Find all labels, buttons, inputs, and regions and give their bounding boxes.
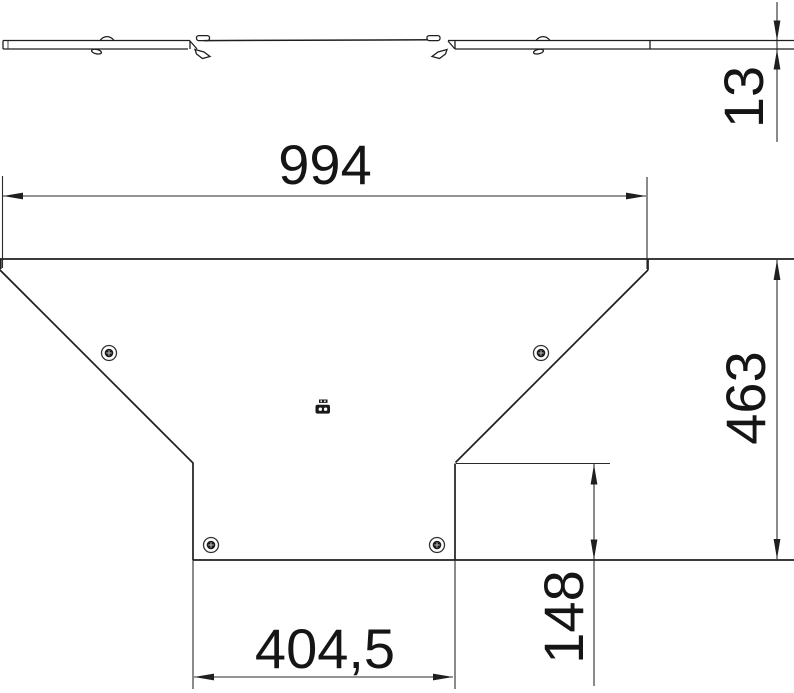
profile-middle-joint — [204, 40, 438, 41]
plan-view-outline — [0, 259, 794, 560]
dim-label-branch-offset: 148 — [532, 570, 595, 663]
turnbuckle-latch-icon — [427, 36, 455, 59]
torx-screw-head-icon — [534, 346, 549, 361]
dimension-branch-offset-148: 148 — [456, 464, 610, 687]
manufacturer-stamp-icon — [316, 400, 331, 414]
dimension-thickness-13: 13 — [712, 2, 780, 142]
technical-drawing-canvas: 13 — [0, 0, 794, 693]
technical-drawing-page: 13 — [0, 0, 794, 693]
dim-label-overall-width: 994 — [278, 133, 371, 196]
dim-label-overall-depth: 463 — [714, 351, 777, 444]
torx-screw-head-icon — [204, 538, 219, 553]
arrowhead — [194, 674, 214, 681]
dim-label-branch-width: 404,5 — [255, 617, 395, 680]
arrowhead — [433, 674, 453, 681]
dimension-branch-width-404-5: 404,5 — [193, 560, 455, 689]
arrowhead — [591, 465, 598, 485]
arrowhead — [774, 21, 781, 41]
arrowhead — [774, 539, 781, 559]
arrowhead — [626, 193, 646, 200]
screw-group — [102, 346, 549, 553]
torx-screw-head-icon — [430, 538, 445, 553]
arrowhead — [3, 193, 23, 200]
profile-right-cover — [448, 37, 794, 55]
dimension-overall-depth-463: 463 — [714, 260, 780, 559]
profile-left-cover — [3, 37, 190, 55]
dimension-overall-width-994: 994 — [3, 133, 648, 269]
side-profile-view — [3, 36, 794, 59]
turnbuckle-latch-icon — [190, 36, 210, 59]
torx-screw-head-icon — [102, 346, 117, 361]
arrowhead — [591, 540, 598, 560]
arrowhead — [774, 260, 781, 280]
plan-right-bevel — [456, 270, 649, 463]
plan-left-bevel — [0, 267, 193, 463]
dim-label-thickness: 13 — [712, 66, 775, 128]
